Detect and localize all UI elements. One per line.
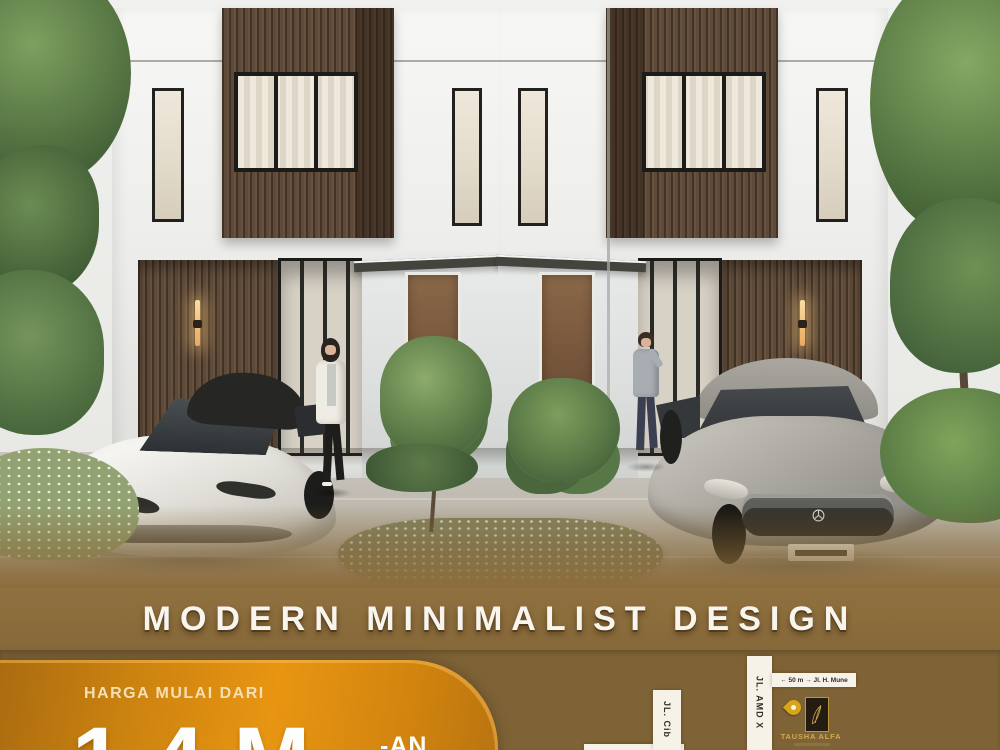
- window-mullion: [682, 76, 686, 168]
- price-label: HARGA MULAI DARI: [84, 685, 265, 703]
- property-ad-poster: MODERN MINIMALIST DESIGN HARGA MULAI DAR…: [0, 0, 1000, 750]
- garden-tree-canopy: [380, 336, 492, 458]
- face: [325, 345, 336, 355]
- leg: [646, 396, 658, 448]
- foliage: [0, 270, 104, 435]
- map-road-middle: JL. AMD X: [747, 656, 772, 750]
- footer-strip: HARGA MULAI DARI 1.4 M -AN JL. Cib JL. A…: [0, 650, 1000, 750]
- person-shadow: [312, 488, 352, 498]
- map-pin-icon: [783, 697, 804, 718]
- face: [641, 338, 651, 347]
- window-mullion: [274, 76, 278, 168]
- banner: MODERN MINIMALIST DESIGN: [0, 588, 1000, 650]
- narrow-window-outer: [816, 88, 848, 222]
- wood-panel-side-face: [606, 8, 644, 238]
- price-box: HARGA MULAI DARI 1.4 M -AN: [0, 660, 498, 750]
- man-figure: [624, 332, 670, 468]
- narrow-window-inner: [452, 88, 482, 226]
- car-roof: [186, 369, 309, 431]
- developer-tagline-bar: [794, 743, 830, 746]
- banner-title: MODERN MINIMALIST DESIGN: [143, 600, 858, 639]
- foliage: [890, 198, 1000, 373]
- window-mullion: [314, 76, 318, 168]
- road-label: JL. AMD X: [747, 656, 772, 750]
- brown-fade-overlay: [0, 505, 1000, 588]
- road-label: ← 50 m → Jl. H. Mune: [780, 677, 848, 684]
- shrub: [880, 388, 1000, 523]
- upper-floor-window: [234, 72, 358, 172]
- wood-panel-side-face: [356, 8, 394, 238]
- developer-name: TAUSHA ALFA: [776, 732, 846, 741]
- developer-logo: [805, 697, 829, 732]
- woman-figure: [310, 338, 356, 494]
- garden-bush-right: [508, 378, 620, 482]
- inner-top: [327, 364, 336, 406]
- window-mullion: [722, 76, 726, 168]
- leg: [636, 396, 646, 450]
- map-pin-dot: [790, 704, 797, 711]
- garden-bush-left: [366, 444, 478, 492]
- leg: [331, 422, 344, 480]
- price-value: 1.4 M: [72, 714, 312, 750]
- sconce-fixture: [798, 320, 807, 328]
- price-suffix: -AN: [380, 732, 427, 750]
- map-road-top: ← 50 m → Jl. H. Mune: [772, 673, 856, 687]
- shoe: [322, 482, 332, 486]
- map-road-left: JL. Cib: [653, 690, 681, 750]
- upper-floor-window: [642, 72, 766, 172]
- feather-logo-icon: [809, 702, 825, 728]
- road-label: JL. Cib: [653, 690, 681, 750]
- person-shadow: [626, 462, 666, 472]
- narrow-window-inner: [518, 88, 548, 226]
- sconce-fixture: [193, 320, 202, 328]
